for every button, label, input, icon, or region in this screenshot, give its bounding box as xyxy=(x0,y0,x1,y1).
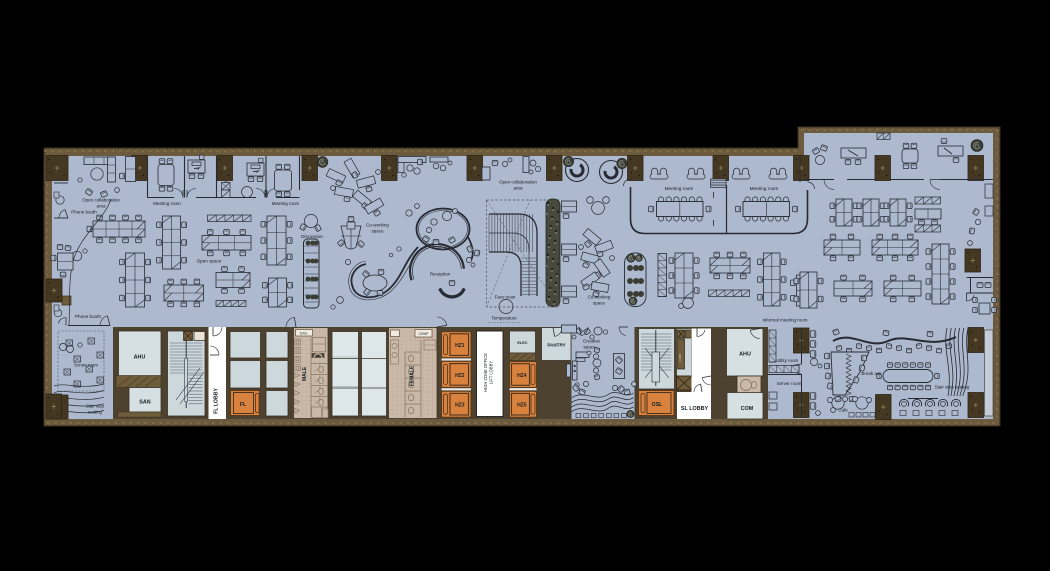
svg-text:space: space xyxy=(371,229,384,234)
svg-text:FL LOBBY: FL LOBBY xyxy=(214,388,220,414)
svg-text:Informal meeting room: Informal meeting room xyxy=(762,318,807,323)
svg-text:Scrum room: Scrum room xyxy=(74,363,98,368)
svg-text:Face scan: Face scan xyxy=(495,295,516,300)
svg-text:Meeting room: Meeting room xyxy=(272,201,300,206)
svg-text:Discussion: Discussion xyxy=(301,234,323,239)
svg-text:HZ3: HZ3 xyxy=(455,403,465,409)
svg-text:COM: COM xyxy=(741,406,754,412)
svg-text:HZ5: HZ5 xyxy=(517,403,527,409)
svg-text:Phone booth: Phone booth xyxy=(75,314,102,319)
svg-text:LIFT LOBBY: LIFT LOBBY xyxy=(489,361,494,384)
svg-text:area: area xyxy=(513,186,523,191)
svg-text:Server room: Server room xyxy=(777,381,802,386)
svg-text:PANTRY: PANTRY xyxy=(547,343,565,348)
svg-text:seating: seating xyxy=(88,410,102,415)
svg-text:Stair step: Stair step xyxy=(86,404,105,409)
svg-text:Break out: Break out xyxy=(861,371,881,376)
svg-text:HZ1: HZ1 xyxy=(455,343,465,349)
svg-text:Temperature: Temperature xyxy=(491,316,517,321)
svg-text:Open collaboration: Open collaboration xyxy=(82,198,120,203)
svg-text:EXH.: EXH. xyxy=(300,331,308,335)
svg-text:SAN: SAN xyxy=(139,400,150,406)
svg-text:OSL: OSL xyxy=(652,402,663,408)
svg-text:HIGH ZONE OFFICE: HIGH ZONE OFFICE xyxy=(483,353,488,392)
svg-text:Open space: Open space xyxy=(197,259,222,264)
svg-text:Cafe: Cafe xyxy=(838,408,848,413)
svg-text:area: area xyxy=(96,204,106,209)
svg-text:space: space xyxy=(583,345,596,350)
svg-text:Meeting room: Meeting room xyxy=(665,186,694,191)
svg-text:Open collaboration: Open collaboration xyxy=(499,180,537,185)
svg-text:SL LOBBY: SL LOBBY xyxy=(681,406,709,412)
svg-text:Meeting room: Meeting room xyxy=(750,186,779,191)
svg-text:space: space xyxy=(593,301,606,306)
svg-text:Utility room: Utility room xyxy=(776,358,799,363)
svg-text:Co-working: Co-working xyxy=(588,295,611,300)
svg-text:CHWP: CHWP xyxy=(419,332,429,336)
svg-text:MALE: MALE xyxy=(302,366,308,381)
svg-text:COMM: COMM xyxy=(678,354,682,362)
svg-text:HZ2: HZ2 xyxy=(455,373,465,379)
svg-text:FL: FL xyxy=(240,402,247,408)
svg-text:AHU: AHU xyxy=(134,355,146,361)
svg-text:Phone booth: Phone booth xyxy=(71,210,97,215)
svg-text:ELEC: ELEC xyxy=(517,341,527,345)
svg-text:Stair step seating: Stair step seating xyxy=(935,385,970,390)
svg-text:FEMALE: FEMALE xyxy=(410,365,416,386)
svg-text:AHU: AHU xyxy=(739,352,751,358)
svg-text:Meeting room: Meeting room xyxy=(153,201,181,206)
svg-text:HZ4: HZ4 xyxy=(517,373,527,379)
svg-text:Reception: Reception xyxy=(430,272,451,277)
svg-text:Co-working: Co-working xyxy=(366,223,389,228)
